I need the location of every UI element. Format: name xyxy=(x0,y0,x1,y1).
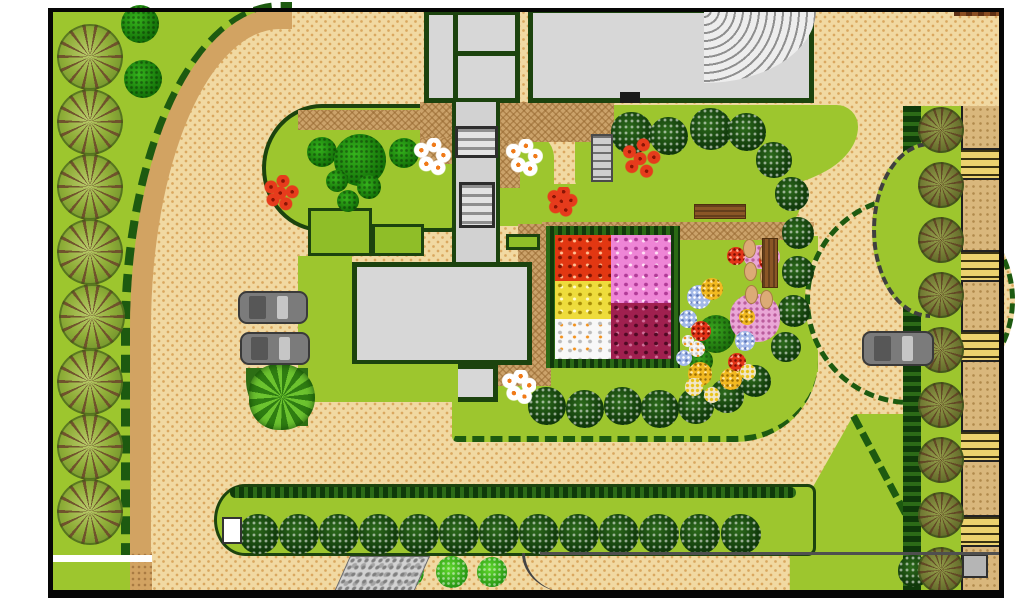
parked-car xyxy=(862,331,934,366)
evergreen-tree xyxy=(778,295,810,327)
evergreen-tree xyxy=(439,514,479,554)
boundary-east xyxy=(999,8,1004,598)
dotted-flower-patch xyxy=(704,387,720,403)
round-shrub xyxy=(436,556,468,588)
dense-green-tree xyxy=(337,190,359,212)
autumn-canopy-tree xyxy=(918,107,964,153)
round-shrub xyxy=(477,557,507,587)
autumn-canopy-tree xyxy=(918,382,964,428)
stepping-stone xyxy=(745,285,758,304)
gold-flower-patch xyxy=(739,309,755,325)
evergreen-tree xyxy=(775,177,809,211)
white-daisy-cluster xyxy=(413,138,451,176)
evergreen-tree xyxy=(519,514,559,554)
evergreen-tree xyxy=(279,514,319,554)
evergreen-tree xyxy=(566,390,604,428)
red-flower-cluster xyxy=(261,175,301,215)
red-flower-patch xyxy=(691,321,711,341)
boundary-south xyxy=(48,590,1004,598)
autumn-canopy-tree xyxy=(918,272,964,318)
evergreen-tree xyxy=(771,332,801,362)
evergreen-tree xyxy=(721,514,761,554)
parked-car xyxy=(240,332,310,365)
large-deciduous-tree xyxy=(57,349,123,415)
evergreen-tree xyxy=(639,514,679,554)
autumn-canopy-tree xyxy=(918,162,964,208)
white-daisy-cluster xyxy=(505,139,543,177)
pergola-steps xyxy=(455,126,498,158)
gravel-patch xyxy=(334,556,430,592)
evergreen-tree xyxy=(319,514,359,554)
objects-layer xyxy=(0,0,1020,605)
dotted-flower-patch xyxy=(740,364,756,380)
dense-green-tree xyxy=(357,175,381,199)
gate-post xyxy=(962,554,988,578)
pergola-steps xyxy=(459,182,495,228)
evergreen-tree xyxy=(641,390,679,428)
gold-flower-patch xyxy=(720,368,742,390)
large-deciduous-tree xyxy=(57,479,123,545)
red-flower-cluster xyxy=(546,187,578,219)
leafy-shrub xyxy=(249,364,315,430)
gold-flower-patch xyxy=(701,278,723,300)
large-deciduous-tree xyxy=(57,24,123,90)
autumn-canopy-tree xyxy=(918,217,964,263)
evergreen-tree xyxy=(604,387,642,425)
red-flower-cluster xyxy=(618,138,664,184)
parked-car xyxy=(238,291,308,324)
dense-green-tree xyxy=(326,170,348,192)
evergreen-tree xyxy=(690,108,732,150)
evergreen-tree xyxy=(599,514,639,554)
site-service-line xyxy=(540,552,1002,555)
large-deciduous-tree xyxy=(57,89,123,155)
blue-flower-patch xyxy=(735,331,755,351)
dense-green-tree xyxy=(124,60,162,98)
stairs xyxy=(591,134,613,182)
large-deciduous-tree xyxy=(57,414,123,480)
autumn-canopy-tree xyxy=(918,492,964,538)
wood-table xyxy=(762,238,778,288)
evergreen-tree xyxy=(782,217,814,249)
evergreen-tree xyxy=(680,514,720,554)
large-deciduous-tree xyxy=(57,219,123,285)
site-plan-canvas xyxy=(0,0,1020,605)
evergreen-tree xyxy=(399,514,439,554)
stepping-stone xyxy=(744,262,757,281)
dotted-flower-patch xyxy=(685,378,703,396)
evergreen-tree xyxy=(728,113,766,151)
white-bench xyxy=(222,517,242,544)
large-deciduous-tree xyxy=(57,154,123,220)
evergreen-tree xyxy=(359,514,399,554)
evergreen-tree xyxy=(479,514,519,554)
evergreen-tree xyxy=(782,256,814,288)
large-deciduous-tree xyxy=(59,284,125,350)
boundary-north xyxy=(48,8,1004,12)
dense-green-tree xyxy=(307,137,337,167)
white-flower-patch xyxy=(682,335,694,347)
autumn-canopy-tree xyxy=(918,437,964,483)
boundary-west xyxy=(48,8,53,598)
stepping-stone xyxy=(743,239,756,258)
wood-bench xyxy=(694,204,746,219)
evergreen-tree xyxy=(756,142,792,178)
roadside-white-band xyxy=(52,555,152,562)
stepping-stone xyxy=(760,290,773,309)
evergreen-tree xyxy=(559,514,599,554)
white-daisy-cluster xyxy=(502,370,536,404)
evergreen-tree xyxy=(239,514,279,554)
